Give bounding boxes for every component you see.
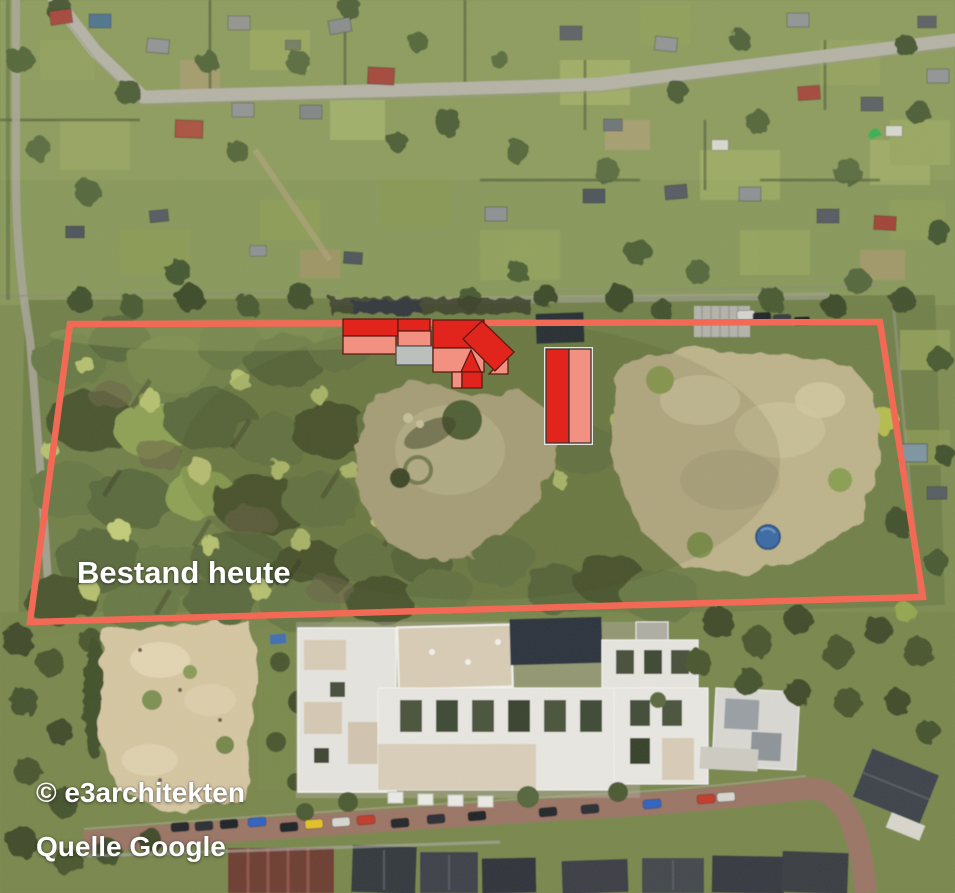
building-footprint-east-hall-east [569,349,591,443]
building-footprint-west-wing-north [343,319,398,336]
source-label: Quelle Google [36,833,226,861]
site-status-label: Bestand heute [77,557,291,588]
building-footprint-mid-annex [396,346,433,365]
presentation-slide: Bestand heute © e3architekten Quelle Goo… [0,0,955,893]
building-footprint-west-wing-south [343,336,396,354]
building-footprint-mid-block-north [398,319,430,331]
photo-grain [0,0,955,893]
building-footprint-east-hall-west [546,349,569,443]
copyright-label: © e3architekten [36,779,245,807]
building-footprint-south-annex-right [462,372,482,388]
building-footprint-mid-block-center [398,331,431,346]
building-footprint-south-annex-left [452,372,462,388]
aerial-photo [0,0,955,893]
